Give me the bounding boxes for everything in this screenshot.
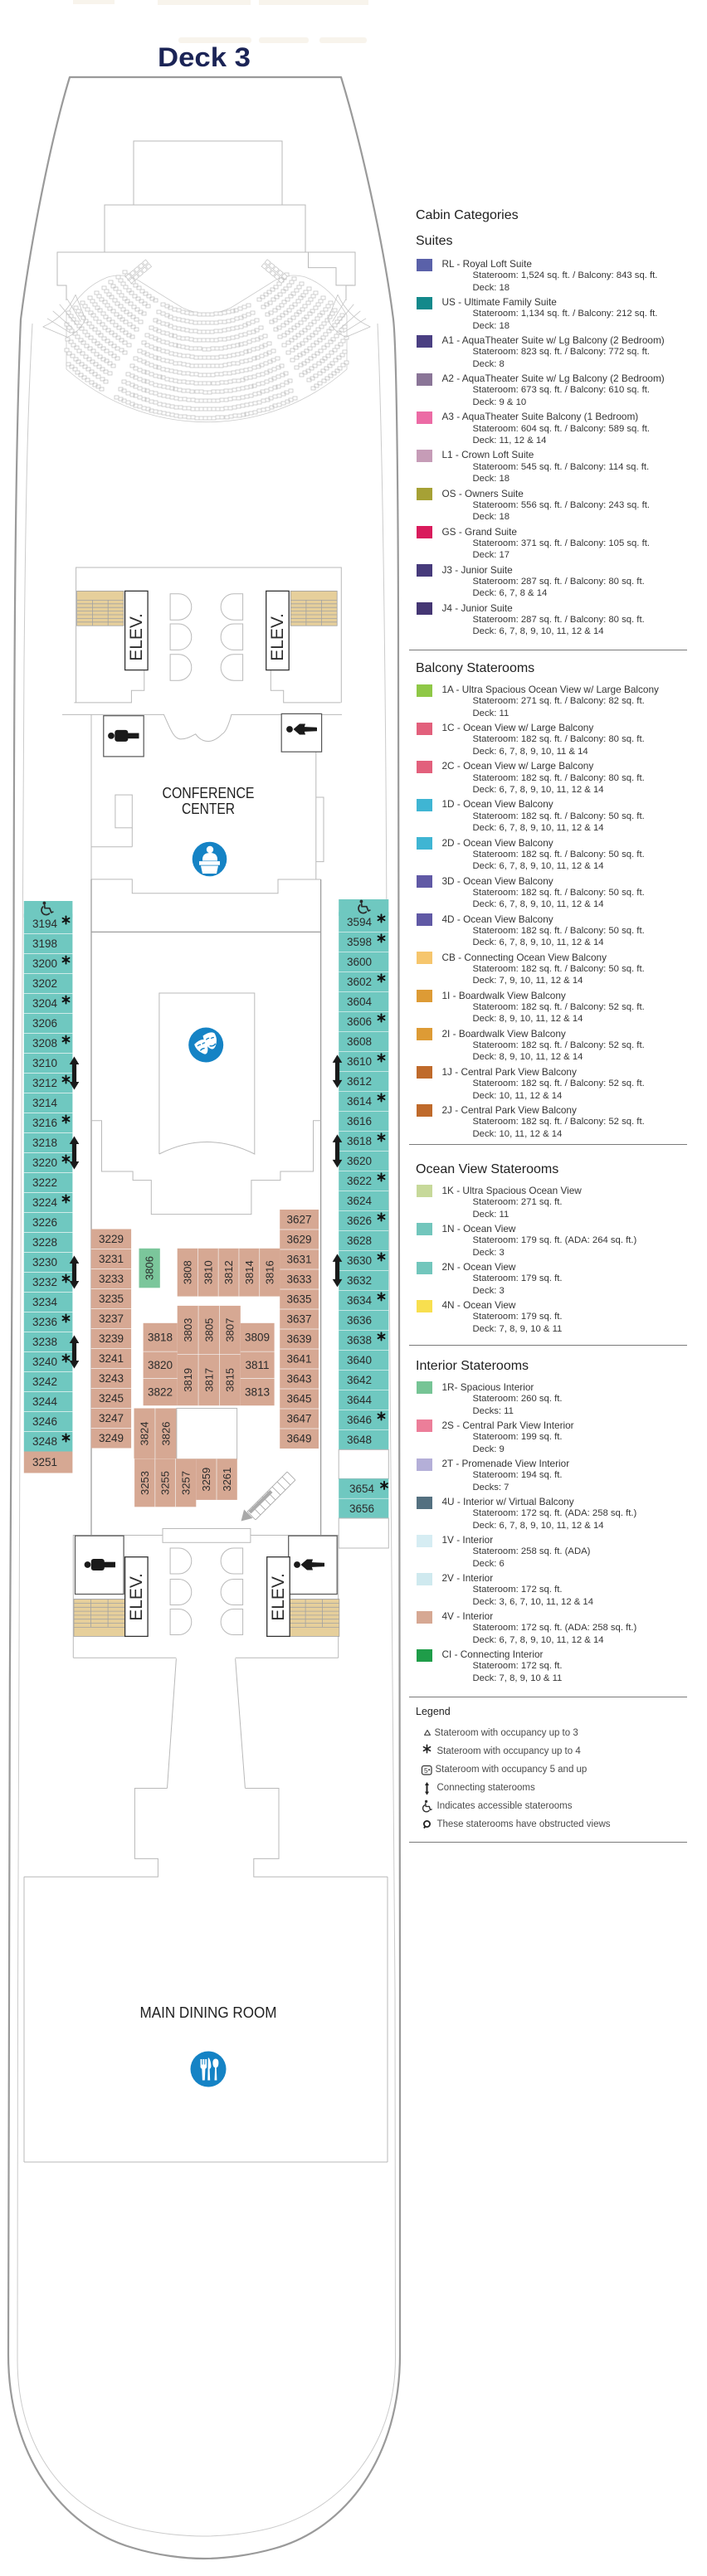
svg-text:3246: 3246: [32, 1415, 57, 1428]
svg-text:3814: 3814: [243, 1260, 256, 1284]
svg-text:3230: 3230: [32, 1256, 57, 1269]
svg-text:3813: 3813: [245, 1386, 270, 1399]
svg-text:3198: 3198: [32, 937, 57, 950]
svg-text:ELEV.: ELEV.: [268, 613, 287, 661]
svg-text:3234: 3234: [32, 1296, 58, 1308]
svg-text:3229: 3229: [99, 1233, 124, 1245]
svg-text:3194: 3194: [32, 918, 58, 930]
svg-text:3627: 3627: [286, 1214, 311, 1226]
svg-text:3630: 3630: [347, 1254, 372, 1267]
svg-text:3255: 3255: [159, 1471, 172, 1495]
svg-text:3640: 3640: [347, 1354, 372, 1366]
svg-text:3649: 3649: [286, 1433, 311, 1445]
svg-text:3228: 3228: [32, 1236, 57, 1249]
svg-text:CONFERENCE: CONFERENCE: [163, 784, 255, 801]
svg-text:ELEV.: ELEV.: [269, 1573, 288, 1621]
svg-text:3245: 3245: [99, 1392, 124, 1405]
svg-text:3654: 3654: [349, 1483, 375, 1495]
svg-text:3826: 3826: [159, 1422, 172, 1446]
svg-text:3212: 3212: [32, 1077, 57, 1089]
svg-text:3819: 3819: [182, 1368, 194, 1392]
svg-text:3624: 3624: [347, 1195, 373, 1207]
svg-text:3645: 3645: [286, 1393, 311, 1405]
svg-text:3632: 3632: [347, 1274, 372, 1287]
svg-text:3216: 3216: [32, 1117, 57, 1129]
svg-text:3226: 3226: [32, 1216, 57, 1229]
svg-text:3600: 3600: [347, 956, 372, 968]
svg-text:3809: 3809: [245, 1332, 270, 1344]
svg-text:ELEV.: ELEV.: [127, 613, 146, 661]
svg-text:3618: 3618: [347, 1135, 372, 1147]
svg-text:CENTER: CENTER: [182, 800, 235, 817]
svg-text:3641: 3641: [286, 1353, 311, 1366]
svg-text:3806: 3806: [144, 1256, 156, 1280]
svg-text:3210: 3210: [32, 1057, 57, 1069]
svg-text:3243: 3243: [99, 1372, 124, 1385]
svg-text:3594: 3594: [347, 916, 373, 928]
svg-text:3626: 3626: [347, 1215, 372, 1227]
svg-text:3608: 3608: [347, 1035, 372, 1048]
svg-text:3606: 3606: [347, 1015, 372, 1028]
svg-text:3818: 3818: [148, 1332, 173, 1344]
svg-text:3220: 3220: [32, 1157, 57, 1169]
svg-text:3634: 3634: [347, 1294, 373, 1307]
svg-text:5: 5: [424, 1766, 428, 1775]
svg-text:3648: 3648: [347, 1434, 372, 1446]
svg-text:3237: 3237: [99, 1312, 124, 1325]
svg-text:3206: 3206: [32, 1017, 57, 1030]
svg-text:3815: 3815: [224, 1368, 236, 1392]
svg-text:3231: 3231: [99, 1253, 124, 1265]
svg-text:3638: 3638: [347, 1334, 372, 1346]
svg-text:3233: 3233: [99, 1273, 124, 1285]
svg-text:3637: 3637: [286, 1313, 311, 1326]
svg-text:3240: 3240: [32, 1356, 57, 1368]
svg-text:3239: 3239: [99, 1332, 124, 1345]
svg-text:3824: 3824: [139, 1422, 151, 1446]
svg-text:3604: 3604: [347, 996, 373, 1008]
svg-text:3631: 3631: [286, 1254, 311, 1266]
svg-text:3610: 3610: [347, 1055, 372, 1068]
svg-text:3805: 3805: [202, 1318, 215, 1342]
svg-text:3241: 3241: [99, 1352, 124, 1365]
svg-text:ELEV.: ELEV.: [127, 1573, 146, 1621]
svg-text:3238: 3238: [32, 1336, 57, 1348]
svg-text:3248: 3248: [32, 1435, 57, 1448]
svg-text:3620: 3620: [347, 1155, 372, 1167]
svg-text:3251: 3251: [32, 1456, 57, 1468]
svg-text:3647: 3647: [286, 1413, 311, 1425]
svg-text:3635: 3635: [286, 1293, 311, 1306]
svg-text:3643: 3643: [286, 1373, 311, 1385]
svg-text:3244: 3244: [32, 1395, 58, 1408]
svg-text:3629: 3629: [286, 1234, 311, 1246]
svg-text:3622: 3622: [347, 1175, 372, 1187]
svg-text:3817: 3817: [202, 1368, 215, 1392]
svg-text:3202: 3202: [32, 977, 57, 990]
svg-text:3598: 3598: [347, 936, 372, 948]
svg-text:3614: 3614: [347, 1095, 373, 1108]
svg-text:3822: 3822: [148, 1386, 173, 1399]
svg-text:MAIN DINING ROOM: MAIN DINING ROOM: [140, 2004, 277, 2021]
svg-text:3214: 3214: [32, 1097, 58, 1109]
svg-text:3249: 3249: [99, 1432, 124, 1444]
svg-text:3808: 3808: [182, 1260, 194, 1284]
svg-text:3820: 3820: [148, 1359, 173, 1371]
svg-text:3218: 3218: [32, 1137, 57, 1149]
svg-text:3200: 3200: [32, 957, 57, 970]
svg-text:3810: 3810: [202, 1260, 214, 1284]
svg-text:3236: 3236: [32, 1316, 57, 1328]
svg-text:3224: 3224: [32, 1196, 58, 1209]
svg-text:3253: 3253: [139, 1471, 151, 1495]
svg-text:3616: 3616: [347, 1115, 372, 1127]
svg-text:3222: 3222: [32, 1176, 57, 1189]
svg-text:3812: 3812: [222, 1260, 235, 1284]
svg-text:3602: 3602: [347, 976, 372, 988]
svg-text:3636: 3636: [347, 1314, 372, 1327]
svg-text:3242: 3242: [32, 1376, 57, 1388]
svg-text:3612: 3612: [347, 1075, 372, 1088]
svg-text:3235: 3235: [99, 1293, 124, 1305]
svg-text:3639: 3639: [286, 1333, 311, 1346]
svg-text:3811: 3811: [245, 1359, 269, 1371]
svg-text:3628: 3628: [347, 1234, 372, 1247]
svg-text:3633: 3633: [286, 1273, 311, 1286]
svg-text:3816: 3816: [264, 1260, 276, 1284]
svg-text:3803: 3803: [182, 1318, 194, 1342]
svg-text:3642: 3642: [347, 1374, 372, 1386]
svg-text:3807: 3807: [224, 1318, 236, 1342]
svg-text:3261: 3261: [221, 1468, 233, 1492]
svg-text:3644: 3644: [347, 1394, 373, 1406]
svg-text:3208: 3208: [32, 1037, 57, 1049]
svg-text:3656: 3656: [349, 1502, 374, 1515]
svg-text:3646: 3646: [347, 1414, 372, 1426]
svg-text:Deck 3: Deck 3: [158, 42, 251, 72]
svg-text:3204: 3204: [32, 997, 58, 1010]
svg-text:3247: 3247: [99, 1412, 124, 1424]
svg-text:3232: 3232: [32, 1276, 57, 1288]
svg-text:3257: 3257: [179, 1471, 192, 1495]
svg-text:3259: 3259: [200, 1468, 212, 1492]
